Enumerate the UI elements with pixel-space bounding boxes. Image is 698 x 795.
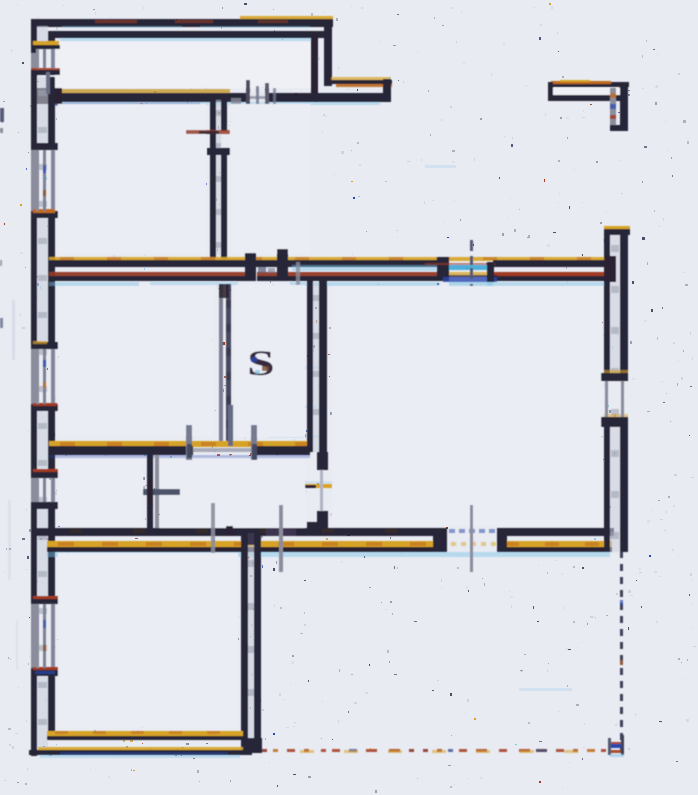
svg-text:S: S <box>247 343 275 383</box>
